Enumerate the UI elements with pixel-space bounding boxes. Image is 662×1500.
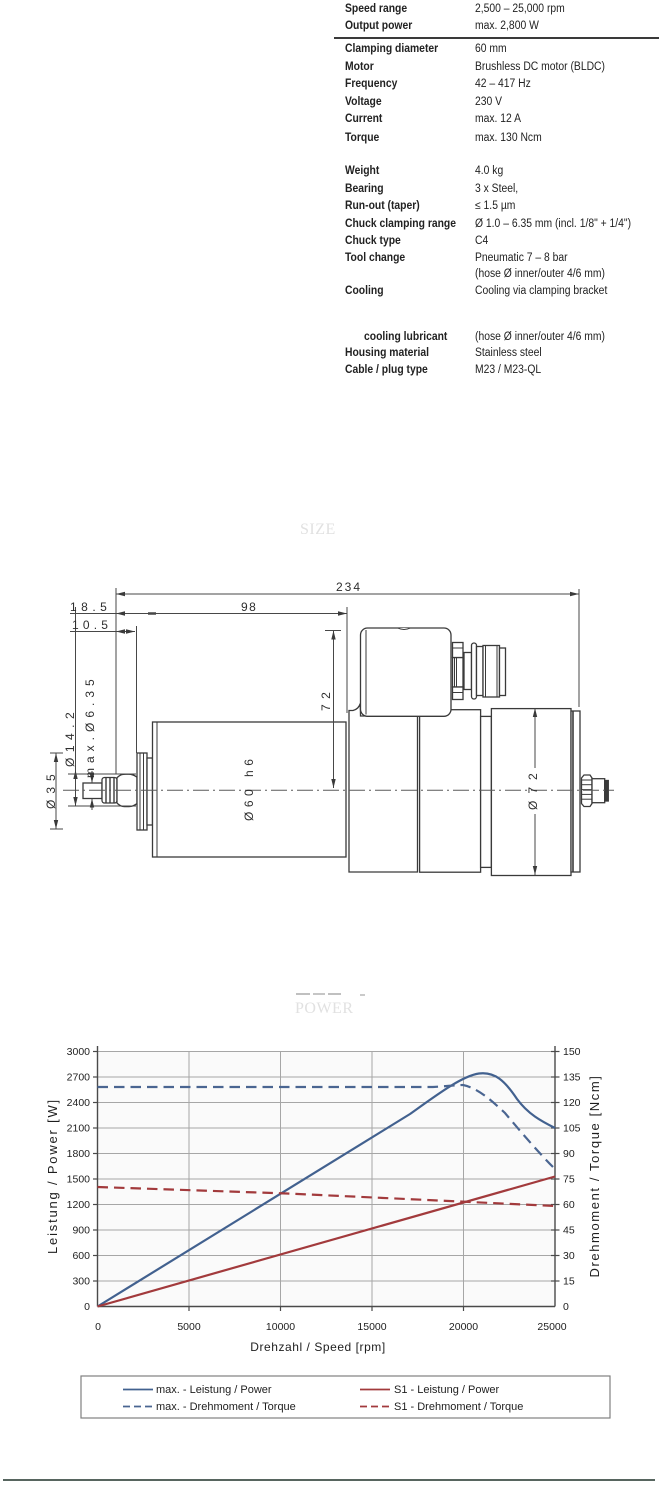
- svg-text:0: 0: [563, 1301, 569, 1313]
- svg-text:Ø60 h6: Ø60 h6: [242, 755, 256, 821]
- svg-text:S1 - Leistung / Power: S1 - Leistung / Power: [394, 1384, 500, 1396]
- svg-text:120: 120: [563, 1097, 581, 1109]
- svg-text:max. - Drehmoment / Torque: max. - Drehmoment / Torque: [156, 1401, 296, 1413]
- svg-text:0: 0: [84, 1301, 90, 1313]
- svg-text:20000: 20000: [449, 1321, 478, 1333]
- svg-text:5000: 5000: [177, 1321, 201, 1333]
- svg-text:1500: 1500: [67, 1174, 91, 1186]
- svg-text:90: 90: [563, 1148, 575, 1160]
- svg-text:150: 150: [563, 1046, 581, 1058]
- svg-text:Ø72: Ø72: [526, 766, 540, 810]
- svg-text:72: 72: [319, 687, 333, 711]
- svg-text:25000: 25000: [537, 1321, 566, 1333]
- svg-text:1200: 1200: [67, 1199, 91, 1211]
- svg-text:45: 45: [563, 1225, 575, 1237]
- svg-text:1800: 1800: [67, 1148, 91, 1160]
- svg-text:S1 - Drehmoment / Torque: S1 - Drehmoment / Torque: [394, 1401, 523, 1413]
- svg-text:0: 0: [95, 1321, 101, 1333]
- svg-text:2100: 2100: [67, 1123, 91, 1135]
- svg-text:Ø35: Ø35: [44, 768, 58, 809]
- svg-text:15000: 15000: [357, 1321, 386, 1333]
- svg-text:234: 234: [336, 580, 362, 594]
- svg-text:75: 75: [563, 1174, 575, 1186]
- svg-text:Drehmoment / Torque [Ncm]: Drehmoment / Torque [Ncm]: [587, 1074, 602, 1277]
- svg-text:900: 900: [72, 1225, 90, 1237]
- svg-text:18.5: 18.5: [70, 600, 111, 614]
- svg-text:Leistung / Power [W]: Leistung / Power [W]: [45, 1098, 60, 1254]
- svg-text:98: 98: [241, 600, 257, 614]
- svg-text:30: 30: [563, 1250, 575, 1262]
- svg-text:2700: 2700: [67, 1072, 91, 1084]
- svg-text:Drehzahl / Speed [rpm]: Drehzahl / Speed [rpm]: [250, 1340, 386, 1354]
- svg-text:Ø14.2: Ø14.2: [63, 707, 77, 767]
- svg-text:15: 15: [563, 1276, 575, 1288]
- svg-text:600: 600: [72, 1250, 90, 1262]
- svg-text:10000: 10000: [266, 1321, 295, 1333]
- svg-text:max.Ø6.35: max.Ø6.35: [83, 674, 97, 778]
- svg-text:60: 60: [563, 1199, 575, 1211]
- svg-text:max. - Leistung / Power: max. - Leistung / Power: [156, 1384, 272, 1396]
- svg-text:105: 105: [563, 1123, 581, 1135]
- svg-text:10.5: 10.5: [72, 618, 112, 632]
- svg-text:135: 135: [563, 1072, 581, 1084]
- svg-text:3000: 3000: [67, 1046, 91, 1058]
- svg-text:2400: 2400: [67, 1097, 91, 1109]
- svg-text:300: 300: [72, 1276, 90, 1288]
